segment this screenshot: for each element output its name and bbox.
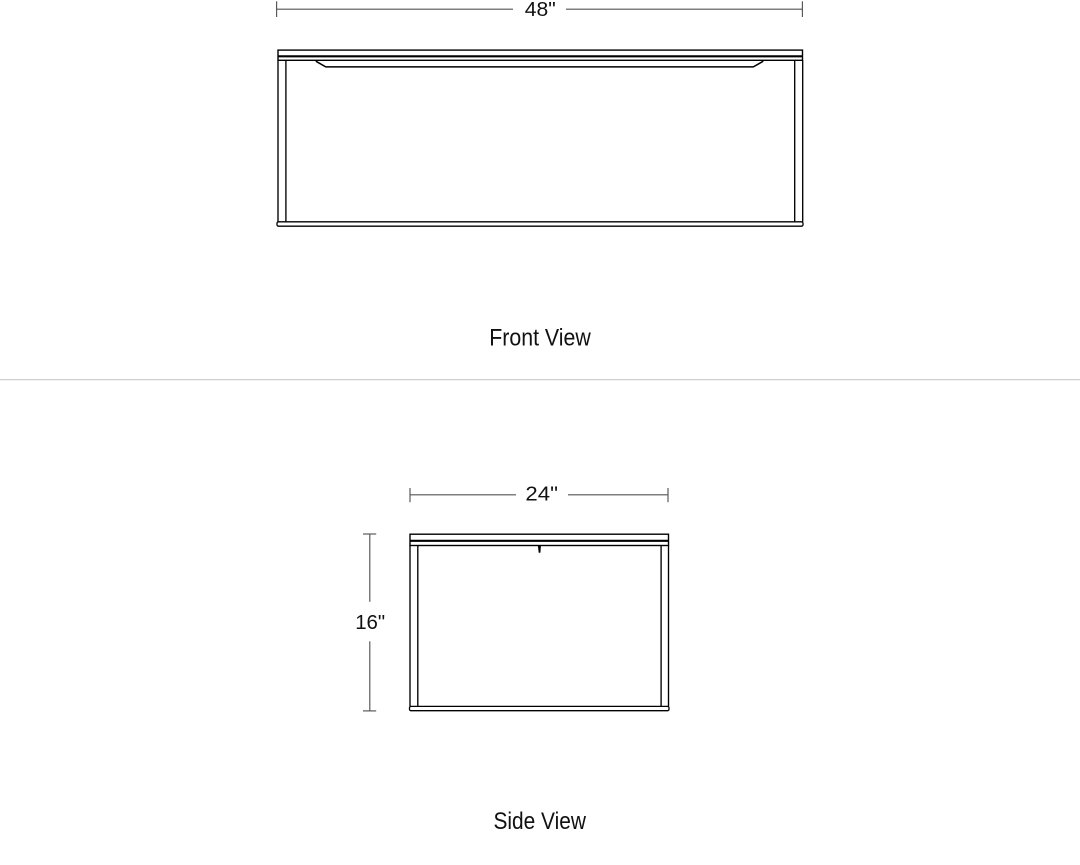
svg-text:24": 24" — [525, 483, 558, 506]
svg-text:48": 48" — [525, 0, 556, 21]
svg-text:16": 16" — [355, 611, 385, 634]
svg-text:Side View: Side View — [493, 808, 586, 835]
svg-text:Front View: Front View — [489, 325, 591, 352]
